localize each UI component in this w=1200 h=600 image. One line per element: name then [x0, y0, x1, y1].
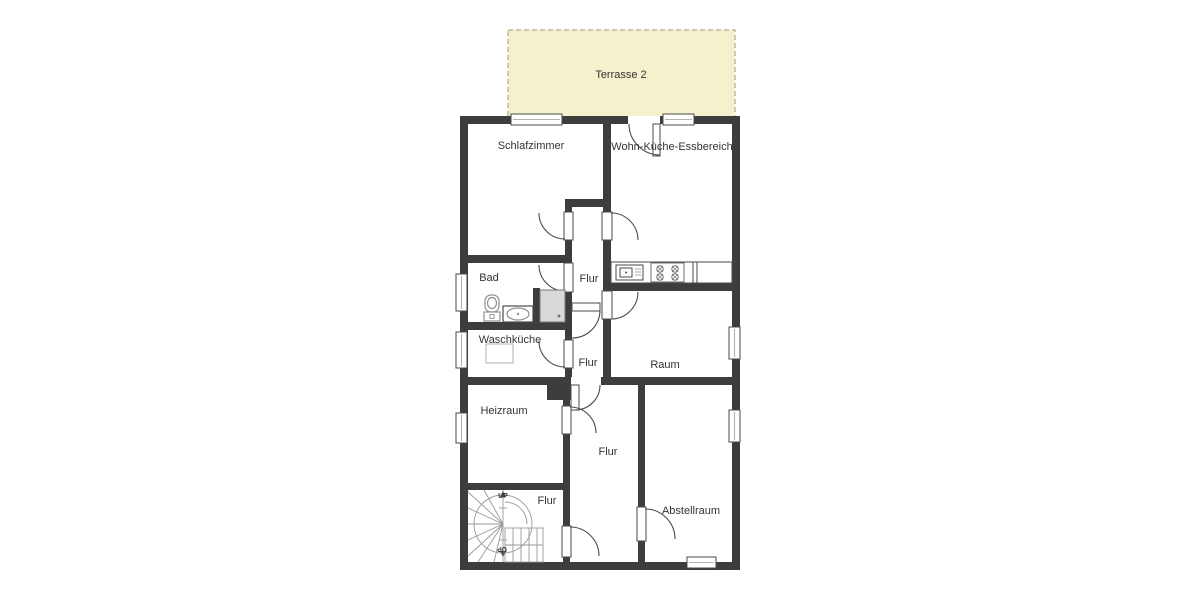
room-label-flur-top: Flur	[580, 273, 599, 285]
window	[663, 114, 694, 125]
kitchen-counter	[611, 262, 732, 283]
room-label-wohn-kueche-essbereich: Wohn-Küche-Essbereich	[611, 141, 732, 153]
window	[456, 274, 467, 311]
terrace-area: Terrasse 2	[508, 30, 735, 118]
kitchen-sink-icon	[616, 265, 643, 280]
floor-plan-page: Terrasse 2	[0, 0, 1200, 600]
room-label-flur-bottom: Flur	[599, 446, 618, 458]
terrace-label: Terrasse 2	[595, 69, 646, 81]
room-label-flur-middle: Flur	[579, 357, 598, 369]
room-label-schlafzimmer: Schlafzimmer	[498, 140, 565, 152]
floor-plan-drawing: Terrasse 2	[0, 0, 1200, 600]
toilet-icon	[484, 295, 500, 321]
window	[456, 413, 467, 443]
room-label-abstellraum: Abstellraum	[662, 505, 720, 517]
room-label-flur-stairs: Flur	[538, 495, 557, 507]
sink-icon	[503, 306, 533, 322]
window	[456, 332, 467, 368]
window	[687, 557, 716, 568]
room-label-raum: Raum	[650, 359, 679, 371]
window	[729, 327, 740, 359]
stairs-up-label: UP	[498, 493, 508, 500]
shower-icon	[540, 290, 565, 322]
room-label-heizraum: Heizraum	[480, 405, 527, 417]
stairs-down-label: UP	[497, 545, 507, 552]
room-label-bad: Bad	[479, 272, 499, 284]
window	[729, 410, 740, 442]
window	[511, 114, 562, 125]
room-label-waschkueche: Waschküche	[479, 334, 542, 346]
